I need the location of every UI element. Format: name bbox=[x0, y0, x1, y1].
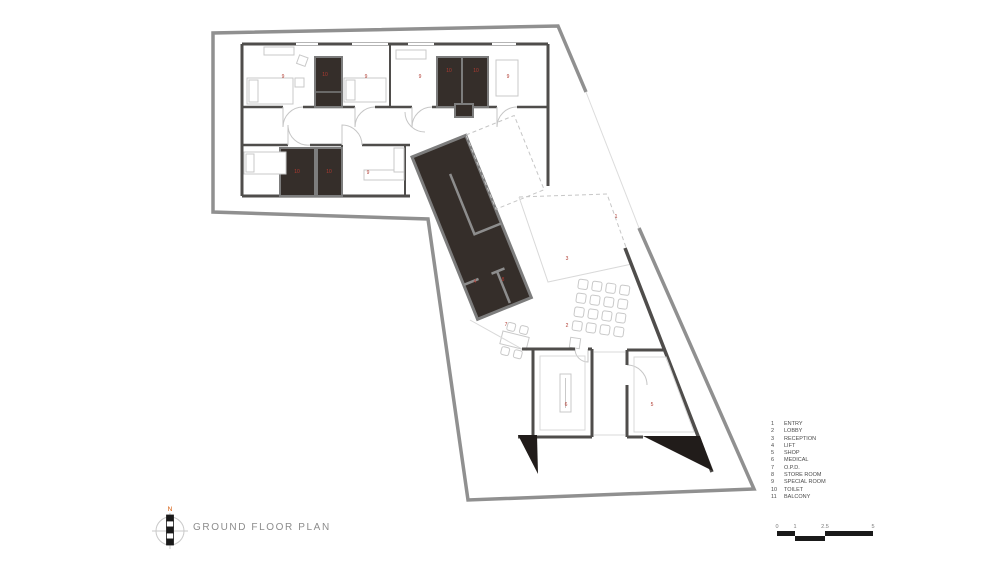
lower-rooms bbox=[518, 248, 713, 474]
room-number-label: 1 bbox=[615, 214, 618, 220]
room-number-label: 9 bbox=[507, 74, 510, 80]
legend-item: 9SPECIAL ROOM bbox=[771, 479, 826, 486]
room-number-label: 6 bbox=[565, 402, 568, 408]
room-number-label: 10 bbox=[294, 169, 300, 175]
room-number-label: 10 bbox=[473, 68, 479, 74]
room-number-label: 10 bbox=[446, 68, 452, 74]
legend-item: 10TOILET bbox=[771, 487, 826, 494]
legend-item: 7O.P.D. bbox=[771, 465, 826, 472]
legend-item: 6MEDICAL bbox=[771, 457, 826, 464]
lobby-chairs bbox=[572, 279, 630, 337]
north-arrow-icon bbox=[152, 513, 188, 549]
room-number-label: 9 bbox=[367, 170, 370, 176]
legend: 1ENTRY2LOBBY3RECEPTION4LIFT5SHOP6MEDICAL… bbox=[771, 421, 826, 501]
scale-tick: 5 bbox=[871, 524, 874, 530]
room-number-label: 2 bbox=[566, 323, 569, 329]
room-number-label: 8 bbox=[502, 277, 505, 283]
legend-item: 5SHOP bbox=[771, 450, 826, 457]
room-number-label: 5 bbox=[651, 402, 654, 408]
scale-tick: 2.5 bbox=[821, 524, 829, 530]
legend-item: 2LOBBY bbox=[771, 428, 826, 435]
legend-item: 1ENTRY bbox=[771, 421, 826, 428]
floor-plan-sheet: { "title": "GROUND FLOOR PLAN", "north":… bbox=[0, 0, 1000, 562]
room-number-label: 9 bbox=[419, 74, 422, 80]
legend-item: 4LIFT bbox=[771, 443, 826, 450]
scale-tick: 0 bbox=[775, 524, 778, 530]
room-number-label: 4 bbox=[474, 279, 477, 285]
opd-desk bbox=[497, 321, 531, 360]
room-number-label: 10 bbox=[322, 72, 328, 78]
north-indicator: N bbox=[152, 506, 188, 549]
room-number-label: 3 bbox=[566, 256, 569, 262]
scale-bar: 0 1 2.5 5 bbox=[775, 524, 874, 541]
reception-platform bbox=[519, 194, 632, 282]
north-label: N bbox=[168, 506, 173, 513]
legend-item: 11BALCONY bbox=[771, 494, 826, 501]
room-number-label: 9 bbox=[365, 74, 368, 80]
scale-tick: 1 bbox=[793, 524, 796, 530]
page-title: GROUND FLOOR PLAN bbox=[193, 522, 331, 533]
legend-item: 3RECEPTION bbox=[771, 436, 826, 443]
room-number-label: 9 bbox=[282, 74, 285, 80]
room-number-label: 10 bbox=[326, 169, 332, 175]
legend-item: 8STORE ROOM bbox=[771, 472, 826, 479]
floor-plan-drawing: 91099101091010948312765 N 0 1 2.5 5 bbox=[0, 0, 1000, 562]
lobby-side-table bbox=[569, 337, 580, 348]
room-number-label: 7 bbox=[505, 322, 508, 328]
